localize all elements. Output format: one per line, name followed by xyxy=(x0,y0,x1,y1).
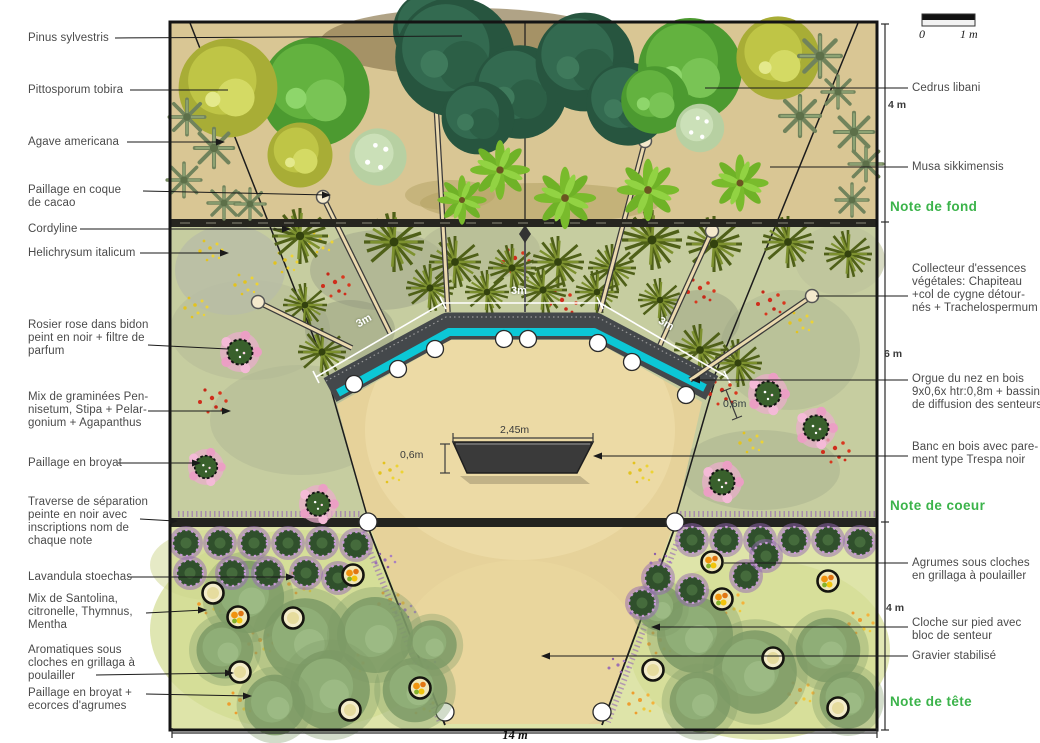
scale-one-meter-label: 1 m xyxy=(960,27,978,42)
label-musa-sikkimensis: Musa sikkimensis xyxy=(912,161,1040,174)
label-agave-americana: Agave americana xyxy=(28,136,168,149)
label-aromatiques-cloches: Aromatiques sous cloches en grillaga à p… xyxy=(28,644,168,683)
garden-plan-page: Pinus sylvestris Pittosporum tobira Agav… xyxy=(0,0,1040,743)
label-rosier-bidon: Rosier rose dans bidon peint en noir + f… xyxy=(28,319,168,358)
label-mix-graminees: Mix de graminées Pen- nisetum, Stipa + P… xyxy=(28,391,168,430)
label-cordyline: Cordyline xyxy=(28,223,168,236)
label-mix-santolina: Mix de Santolina, citronelle, Thymnus, M… xyxy=(28,593,168,632)
dim-bench-depth: 0,6m xyxy=(400,449,423,461)
bench xyxy=(453,442,593,484)
label-paillage-ecorces: Paillage en broyat + ecorces d'agrumes xyxy=(28,687,168,713)
dim-organ-depth: 0,6m xyxy=(723,398,746,410)
note-de-tete: Note de tête xyxy=(890,694,972,709)
label-pittosporum-tobira: Pittosporum tobira xyxy=(28,84,168,97)
dim-depth-mid: 6 m xyxy=(884,348,902,360)
label-paillage-cacao: Paillage en coque de cacao xyxy=(28,184,168,210)
note-de-coeur: Note de coeur xyxy=(890,498,985,513)
note-de-fond: Note de fond xyxy=(890,199,977,214)
dim-scene-top: 3m xyxy=(511,285,527,297)
label-cloche-sur-pied: Cloche sur pied avec bloc de senteur xyxy=(912,617,1040,643)
label-traverse-separation: Traverse de séparation peinte en noir av… xyxy=(28,496,168,548)
label-pinus-sylvestris: Pinus sylvestris xyxy=(28,32,168,45)
label-agrumes-cloches: Agrumes sous cloches en grillaga à poula… xyxy=(912,557,1040,583)
label-gravier-stabilise: Gravier stabilisé xyxy=(912,650,1040,663)
dim-bench-width: 2,45m xyxy=(500,424,529,436)
label-banc-trespa: Banc en bois avec pare- ment type Trespa… xyxy=(912,441,1040,467)
label-paillage-broyat: Paillage en broyat xyxy=(28,457,168,470)
label-collecteur-essences: Collecteur d'essences végétales: Chapite… xyxy=(912,263,1040,315)
scale-zero-label: 0 xyxy=(919,27,925,42)
scale-bar xyxy=(922,14,975,26)
dim-width-bottom: 14 m xyxy=(470,728,560,743)
label-helichrysum: Helichrysum italicum xyxy=(28,247,168,260)
dim-depth-top: 4 m xyxy=(888,99,906,111)
label-orgue-du-nez: Orgue du nez en bois 9x0,6x htr:0,8m + b… xyxy=(912,373,1040,412)
label-cedrus-libani: Cedrus libani xyxy=(912,82,1040,95)
dim-depth-bottom: 4 m xyxy=(886,602,904,614)
label-lavandula: Lavandula stoechas xyxy=(28,571,168,584)
